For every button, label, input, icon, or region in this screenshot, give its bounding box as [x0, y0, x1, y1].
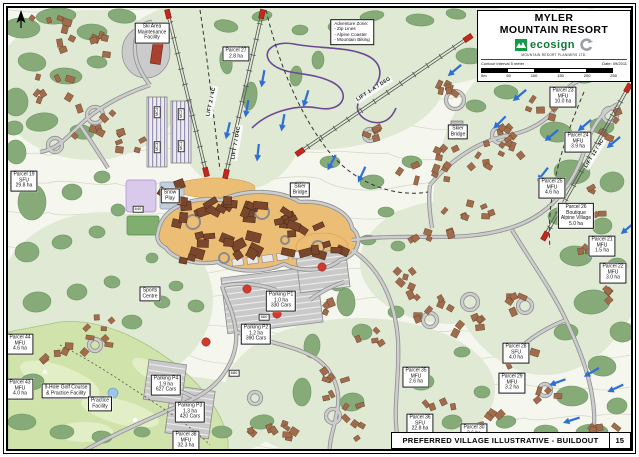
scale-bar-ticks: 0m 50 100 150 200 250 — [481, 73, 617, 78]
label-lot-mc1-line: MC1 — [179, 142, 184, 150]
scale-tick: 0m — [481, 73, 487, 78]
label-parcel-27: Parcel 272.8 ha — [222, 46, 249, 61]
label-parcel-22-line: 3.0 ha — [602, 276, 623, 282]
label-parcel-29-line: 3.2 ha — [501, 386, 522, 392]
title-block: MYLER MOUNTAIN RESORT ecosign MOUNTAIN R… — [477, 10, 631, 82]
label-ski-area-maintenance-facility: Ski AreaMaintenanceFacility — [135, 23, 170, 44]
label-parcel-23: Parcel 23MFU10.0 ha — [549, 87, 576, 108]
ecosign-logo-text: ecosign — [530, 39, 575, 51]
ecosign-logo: ecosign — [481, 38, 627, 52]
label-parcel-24: Parcel 24MFU3.9 ha — [564, 132, 591, 153]
label-parcel-43: Parcel 43MFU4.0 ha — [8, 379, 34, 400]
label-lot-mc1: MC1 — [178, 140, 185, 152]
label-parcel-21: Parcel 21MFU1.5 ha — [588, 236, 615, 257]
label-parcel-22: Parcel 22MFU3.0 ha — [599, 263, 626, 284]
label-adventure-zone: Adventure Zone:- Zip Lines- Alpine Coast… — [330, 19, 374, 45]
sheet-title: PREFERRED VILLAGE ILLUSTRATIVE - BUILDOU… — [392, 436, 608, 445]
label-lot-mc2: MC2 — [178, 108, 185, 120]
label-parking-p2: Parking P21.2 ha390 Cars — [241, 324, 271, 345]
label-parcel-43-line: 4.0 ha — [9, 392, 30, 398]
date-label: Date: 09/2011 — [602, 61, 627, 66]
label-practice-facility-line: Facility — [91, 404, 109, 410]
label-parking-p4: Parking P41.9 ha627 Cars — [151, 375, 181, 396]
label-lift-1a: LIFT 1-A / D6G — [355, 76, 393, 103]
label-skier-bridge-west: SkierBridge — [290, 182, 310, 197]
scale-tick: 100 — [531, 73, 538, 78]
scale-tick: 200 — [584, 73, 591, 78]
page-number: 15 — [609, 433, 630, 448]
label-parcel-38-line: 32.3 ha — [175, 444, 196, 449]
label-lot-mc3-line: MC3 — [155, 143, 160, 151]
label-parking-p4-line: 627 Cars — [154, 388, 178, 394]
label-parcel-44-line: 4.6 ha — [9, 347, 30, 353]
label-road-680-line: 680 — [231, 371, 238, 376]
label-snow-play-line: Play — [164, 196, 177, 202]
label-parcel-44: Parcel 44MFU4.6 ha — [8, 334, 34, 355]
resort-name-line1: MYLER — [481, 13, 627, 25]
label-parking-p3-line: 420 Cars — [178, 415, 202, 421]
label-road-660: 660 — [259, 314, 270, 321]
label-road-660-line: 660 — [261, 315, 268, 320]
label-parking-p1: Parking P11.0 ha330 Cars — [266, 291, 296, 312]
label-road-640-line: 640 — [135, 207, 142, 212]
label-skier-bridge-east-line: Bridge — [451, 132, 465, 138]
label-parcel-28-line: 4.0 ha — [505, 356, 526, 362]
resort-master-plan-sheet: Ski AreaMaintenanceFacilityAdventure Zon… — [0, 0, 639, 457]
scale-tick: 150 — [557, 73, 564, 78]
label-lift-2-line: LIFT 2 / 4C — [206, 87, 218, 117]
scale-tick: 250 — [610, 73, 617, 78]
ecosign-mountain-icon — [515, 39, 527, 51]
label-sports-centre-line: Centre — [142, 294, 157, 300]
label-skier-bridge-east: SkierBridge — [448, 124, 468, 139]
label-snow-play: SnowPlay — [161, 188, 180, 203]
contour-interval-note: Contour Interval 5 meter — [481, 61, 524, 66]
label-parcel-28: Parcel 28SFU4.0 ha — [502, 343, 529, 364]
label-golf-course-line: & Practice Facility — [45, 391, 88, 397]
label-lot-mc3: MC3 — [154, 141, 161, 153]
label-parcel-25: Parcel 25MFU4.6 ha — [538, 178, 565, 199]
label-lift-7-line: LIFT 7 / D4C — [231, 126, 242, 160]
label-lift-2: LIFT 2 / 4C — [206, 86, 218, 118]
label-lot-mc4: MC4 — [154, 106, 161, 118]
label-ski-area-maintenance-facility-line: Facility — [138, 36, 167, 42]
label-practice-facility: PracticeFacility — [88, 396, 112, 411]
label-road-680: 680 — [229, 370, 240, 377]
resort-name-line2: MOUNTAIN RESORT — [481, 25, 627, 37]
label-parcel-19: Parcel 19SFU29.8 ha — [10, 171, 37, 192]
label-golf-course: 9-Hole Golf Course& Practice Facility — [42, 383, 91, 398]
label-parcel-24-line: 3.9 ha — [567, 145, 588, 151]
label-parcel-27-line: 2.8 ha — [225, 54, 246, 60]
label-parcel-25-line: 4.6 ha — [541, 191, 562, 197]
label-lift-7: LIFT 7 / D4C — [231, 125, 243, 161]
label-lift-1a-line: LIFT 1-A / D6G — [356, 77, 392, 103]
sheet-title-bar: PREFERRED VILLAGE ILLUSTRATIVE - BUILDOU… — [391, 432, 631, 449]
label-parcel-26: Parcel 26BoutiqueAlpine Village5.0 ha — [558, 203, 594, 229]
scale-tick: 50 — [506, 73, 510, 78]
label-parcel-21-line: 1.5 ha — [591, 249, 612, 255]
label-parking-p2-line: 390 Cars — [244, 337, 268, 343]
label-parcel-19-line: 29.8 ha — [13, 184, 34, 190]
label-parcel-38: Parcel 38MFU32.3 ha — [172, 431, 199, 449]
north-arrow-icon — [14, 10, 28, 28]
label-adventure-zone-line: - Mountain Biking — [334, 37, 370, 42]
ecosign-swoosh-icon — [578, 38, 593, 52]
label-parcel-23-line: 10.0 ha — [552, 100, 573, 106]
label-parcel-26-line: 5.0 ha — [561, 222, 591, 228]
label-parking-p3: Parking P31.3 ha420 Cars — [175, 402, 205, 423]
label-parcel-35-line: 2.6 ha — [405, 380, 426, 386]
label-parking-p1-line: 330 Cars — [269, 304, 293, 310]
label-road-640: 640 — [133, 206, 144, 213]
scale-bar — [481, 68, 613, 73]
label-skier-bridge-west-line: Bridge — [293, 190, 307, 196]
label-parcel-29: Parcel 29MFU3.2 ha — [498, 373, 525, 394]
label-lot-mc4-line: MC4 — [155, 108, 160, 116]
label-lot-mc2-line: MC2 — [179, 110, 184, 118]
label-sports-centre: SportsCentre — [139, 286, 160, 301]
ecosign-subtext: MOUNTAIN RESORT PLANNERS LTD. — [481, 53, 627, 60]
label-parcel-35: Parcel 35MFU2.6 ha — [402, 367, 429, 388]
